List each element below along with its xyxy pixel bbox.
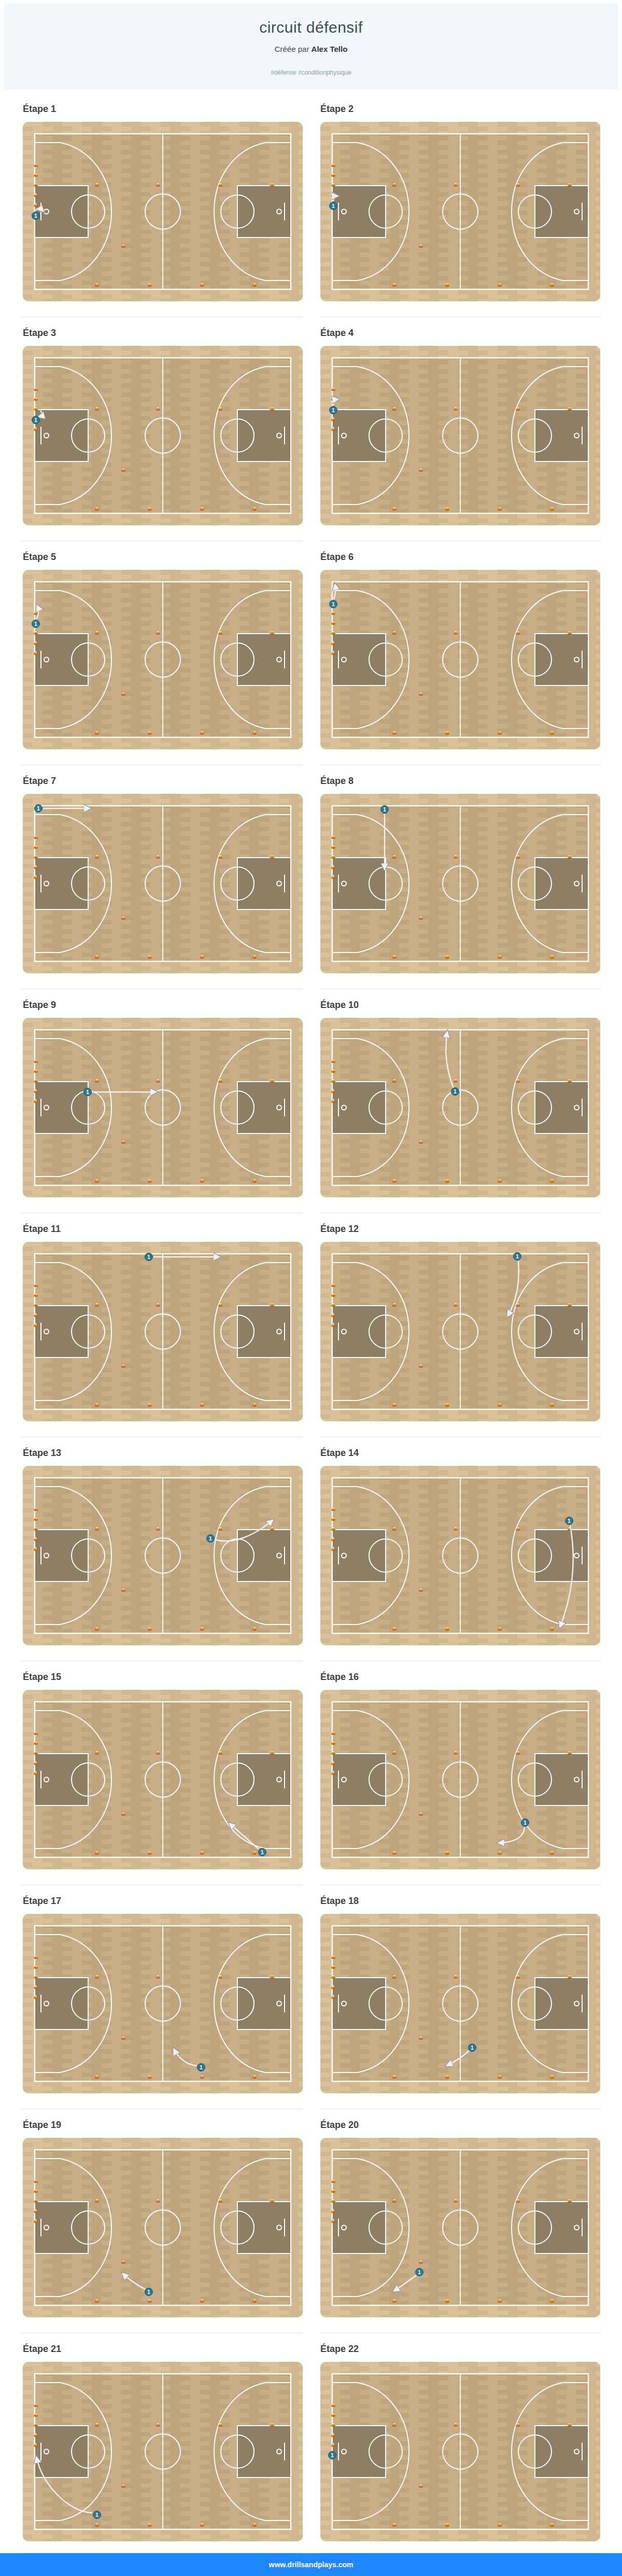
- player-1-marker: 1: [32, 416, 40, 424]
- right-key: [535, 1754, 588, 1805]
- court-diagram: 1: [320, 1242, 600, 1421]
- step-label: Étape 17: [23, 1896, 303, 1907]
- svg-text:1: 1: [86, 1089, 89, 1095]
- court-diagram: 1: [23, 1018, 303, 1197]
- svg-text:1: 1: [147, 1254, 150, 1260]
- svg-text:1: 1: [95, 2512, 98, 2518]
- step-cell: Étape 21: [23, 2333, 303, 2553]
- svg-text:1: 1: [418, 2269, 421, 2275]
- player-1-marker: 1: [451, 1088, 459, 1096]
- step-label: Étape 10: [320, 1000, 600, 1011]
- step-label: Étape 11: [23, 1224, 303, 1235]
- court-diagram: 1: [320, 122, 600, 301]
- step-label: Étape 5: [23, 552, 303, 563]
- hashtags: #défense #conditionphysique: [4, 69, 618, 76]
- svg-text:1: 1: [200, 2064, 203, 2070]
- site-link[interactable]: www.drillsandplays.com: [269, 2560, 354, 2569]
- right-key: [535, 1530, 588, 1581]
- step-label: Étape 18: [320, 1896, 600, 1907]
- court-diagram: 1: [23, 1690, 303, 1869]
- court-diagram: 1: [23, 1914, 303, 2093]
- player-1-marker: 1: [566, 1517, 573, 1525]
- step-label: Étape 1: [23, 104, 303, 115]
- right-key: [535, 1082, 588, 1133]
- step-label: Étape 8: [320, 776, 600, 787]
- step-cell: Étape 6: [320, 541, 600, 765]
- player-1-marker: 1: [469, 2044, 476, 2052]
- right-key: [535, 2426, 588, 2477]
- court-diagram: 1: [23, 1242, 303, 1421]
- court-diagram: 1: [23, 346, 303, 525]
- step-label: Étape 4: [320, 328, 600, 339]
- court-diagram: 1: [320, 794, 600, 973]
- court-diagram: 1: [320, 1690, 600, 1869]
- right-key: [237, 858, 291, 909]
- court-diagram: 1: [23, 1466, 303, 1645]
- left-key: [35, 634, 88, 685]
- step-label: Étape 13: [23, 1448, 303, 1459]
- player-1-marker: 1: [35, 805, 43, 813]
- player-1-marker: 1: [32, 620, 40, 628]
- court-diagram: 1: [320, 1466, 600, 1645]
- left-key: [35, 858, 88, 909]
- step-label: Étape 20: [320, 2120, 600, 2131]
- step-cell: Étape 2: [320, 93, 600, 317]
- left-key: [35, 2202, 88, 2253]
- right-key: [237, 1978, 291, 2029]
- court-diagram: 1: [23, 570, 303, 749]
- svg-text:1: 1: [209, 1535, 212, 1542]
- svg-text:1: 1: [332, 601, 335, 607]
- step-cell: Étape 1: [23, 93, 303, 317]
- left-key: [332, 2426, 386, 2477]
- player-1-marker: 1: [145, 2288, 153, 2296]
- svg-text:1: 1: [261, 1849, 264, 1855]
- player-1-marker: 1: [145, 1253, 153, 1261]
- court-diagram: 1: [320, 1914, 600, 2093]
- svg-text:1: 1: [147, 2289, 150, 2295]
- svg-text:1: 1: [332, 407, 335, 413]
- player-1-marker: 1: [330, 600, 337, 608]
- player-1-marker: 1: [197, 2064, 205, 2071]
- right-key: [535, 1306, 588, 1357]
- step-label: Étape 3: [23, 328, 303, 339]
- step-label: Étape 22: [320, 2344, 600, 2355]
- player-1-marker: 1: [207, 1535, 215, 1543]
- left-key: [35, 2426, 88, 2477]
- step-label: Étape 16: [320, 1672, 600, 1683]
- court-diagram: 1: [320, 1018, 600, 1197]
- footer-bar: www.drillsandplays.com: [0, 2553, 622, 2576]
- right-key: [535, 858, 588, 909]
- player-1-marker: 1: [514, 1253, 521, 1261]
- step-label: Étape 15: [23, 1672, 303, 1683]
- right-key: [535, 186, 588, 237]
- player-1-marker: 1: [84, 1088, 92, 1096]
- step-label: Étape 14: [320, 1448, 600, 1459]
- right-key: [237, 1082, 291, 1133]
- step-cell: Étape 10: [320, 989, 600, 1213]
- court-diagram: 1: [320, 2362, 600, 2541]
- right-key: [237, 410, 291, 461]
- svg-text:1: 1: [34, 621, 37, 627]
- left-key: [332, 634, 386, 685]
- svg-text:1: 1: [383, 806, 386, 813]
- right-key: [535, 410, 588, 461]
- svg-text:1: 1: [454, 1088, 457, 1095]
- step-cell: Étape 18: [320, 1885, 600, 2109]
- court-diagram: 1: [23, 794, 303, 973]
- right-key: [535, 634, 588, 685]
- step-label: Étape 12: [320, 1224, 600, 1235]
- step-cell: Étape 14: [320, 1437, 600, 1661]
- step-cell: Étape 17: [23, 1885, 303, 2109]
- step-cell: Étape 3: [23, 317, 303, 541]
- step-cell: Étape 19: [23, 2109, 303, 2333]
- left-key: [332, 1754, 386, 1805]
- svg-text:1: 1: [524, 1819, 527, 1826]
- player-1-marker: 1: [93, 2511, 101, 2519]
- player-1-marker: 1: [416, 2269, 423, 2276]
- left-key: [332, 1978, 386, 2029]
- right-key: [237, 186, 291, 237]
- left-key: [332, 186, 386, 237]
- court-diagram: 1: [23, 122, 303, 301]
- court-diagram: 1: [320, 346, 600, 525]
- court-diagram: 1: [23, 2138, 303, 2317]
- author-byline: Créée par Alex Tello: [4, 45, 618, 53]
- svg-text:1: 1: [516, 1253, 519, 1259]
- player-1-marker: 1: [381, 806, 389, 814]
- left-key: [35, 1754, 88, 1805]
- right-key: [237, 634, 291, 685]
- step-cell: Étape 11: [23, 1213, 303, 1437]
- left-key: [332, 858, 386, 909]
- step-cell: Étape 8: [320, 765, 600, 989]
- step-cell: Étape 7: [23, 765, 303, 989]
- left-key: [332, 1082, 386, 1133]
- left-key: [35, 1306, 88, 1357]
- right-key: [237, 1754, 291, 1805]
- player-1-marker: 1: [32, 212, 40, 220]
- step-label: Étape 7: [23, 776, 303, 787]
- right-key: [237, 1306, 291, 1357]
- player-1-marker: 1: [259, 1849, 266, 1856]
- court-diagram: 1: [320, 570, 600, 749]
- court-diagram: 1: [23, 2362, 303, 2541]
- left-key: [35, 1082, 88, 1133]
- drill-header: circuit défensif Créée par Alex Tello #d…: [4, 3, 618, 89]
- byline-prefix: Créée par: [275, 45, 312, 53]
- right-key: [535, 2202, 588, 2253]
- step-label: Étape 2: [320, 104, 600, 115]
- svg-text:1: 1: [37, 805, 40, 811]
- svg-text:1: 1: [34, 417, 37, 423]
- step-cell: Étape 20: [320, 2109, 600, 2333]
- step-cell: Étape 13: [23, 1437, 303, 1661]
- svg-text:1: 1: [568, 1518, 571, 1524]
- left-key: [35, 1530, 88, 1581]
- author-name: Alex Tello: [312, 45, 348, 53]
- player-1-marker: 1: [329, 2452, 336, 2459]
- left-key: [332, 1530, 386, 1581]
- step-label: Étape 9: [23, 1000, 303, 1011]
- svg-text:1: 1: [34, 213, 37, 219]
- page-title: circuit défensif: [4, 19, 618, 36]
- step-cell: Étape 4: [320, 317, 600, 541]
- left-key: [332, 410, 386, 461]
- right-key: [237, 2426, 291, 2477]
- step-cell: Étape 22: [320, 2333, 600, 2553]
- step-label: Étape 19: [23, 2120, 303, 2131]
- step-cell: Étape 12: [320, 1213, 600, 1437]
- step-label: Étape 21: [23, 2344, 303, 2355]
- step-cell: Étape 15: [23, 1661, 303, 1885]
- left-key: [35, 410, 88, 461]
- left-key: [332, 1306, 386, 1357]
- left-key: [332, 2202, 386, 2253]
- player-1-marker: 1: [330, 202, 337, 210]
- step-cell: Étape 9: [23, 989, 303, 1213]
- svg-text:1: 1: [471, 2045, 474, 2051]
- step-cell: Étape 16: [320, 1661, 600, 1885]
- player-1-marker: 1: [521, 1819, 529, 1827]
- step-label: Étape 6: [320, 552, 600, 563]
- steps-grid: Étape 1: [0, 93, 622, 2553]
- right-key: [237, 2202, 291, 2253]
- right-key: [535, 1978, 588, 2029]
- svg-text:1: 1: [332, 203, 335, 209]
- player-1-marker: 1: [330, 407, 337, 414]
- court-diagram: 1: [320, 2138, 600, 2317]
- svg-text:1: 1: [331, 2452, 334, 2458]
- step-cell: Étape 5: [23, 541, 303, 765]
- left-key: [35, 1978, 88, 2029]
- page: { "header": { "title": "circuit défensif…: [0, 0, 622, 2576]
